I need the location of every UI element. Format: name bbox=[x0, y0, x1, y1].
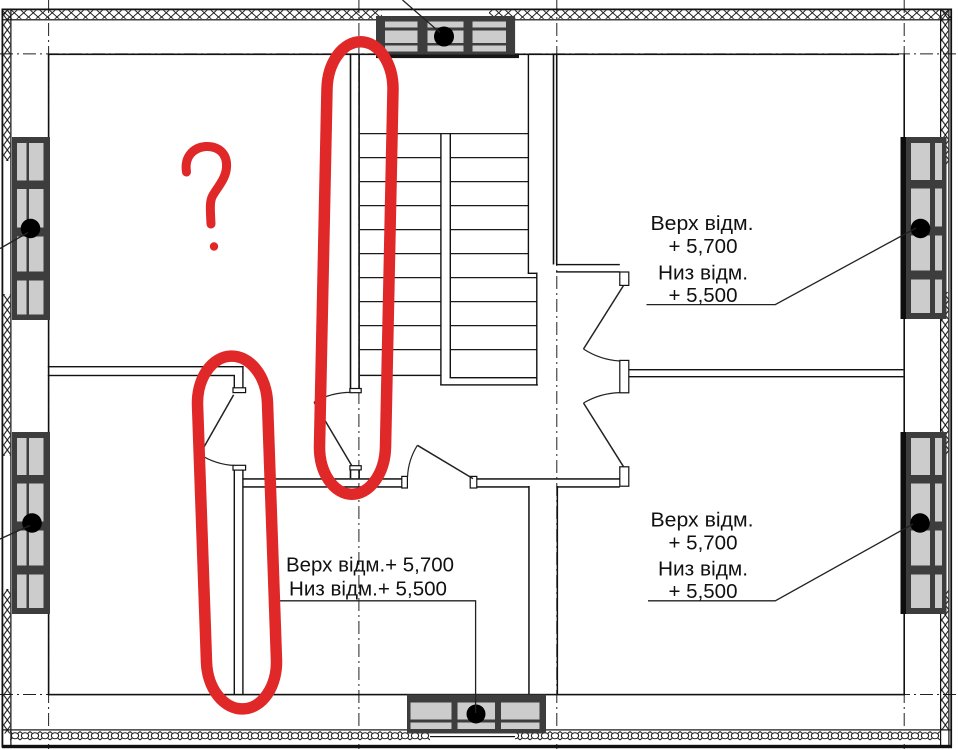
svg-text:Верх відм.: Верх відм. bbox=[651, 213, 754, 235]
svg-text:Низ відм.+ 5,500: Низ відм.+ 5,500 bbox=[289, 578, 447, 601]
svg-text:+ 5,700: + 5,700 bbox=[669, 533, 738, 555]
svg-text:Низ відм.: Низ відм. bbox=[658, 263, 748, 285]
svg-text:Верх відм.+ 5,700: Верх відм.+ 5,700 bbox=[286, 554, 454, 577]
svg-text:+ 5,500: + 5,500 bbox=[669, 581, 738, 603]
svg-text:Низ відм.: Низ відм. bbox=[658, 559, 748, 581]
svg-text:+ 5,500: + 5,500 bbox=[669, 285, 738, 307]
svg-text:Верх відм.: Верх відм. bbox=[651, 510, 754, 532]
svg-text:+ 5,700: + 5,700 bbox=[669, 236, 738, 258]
